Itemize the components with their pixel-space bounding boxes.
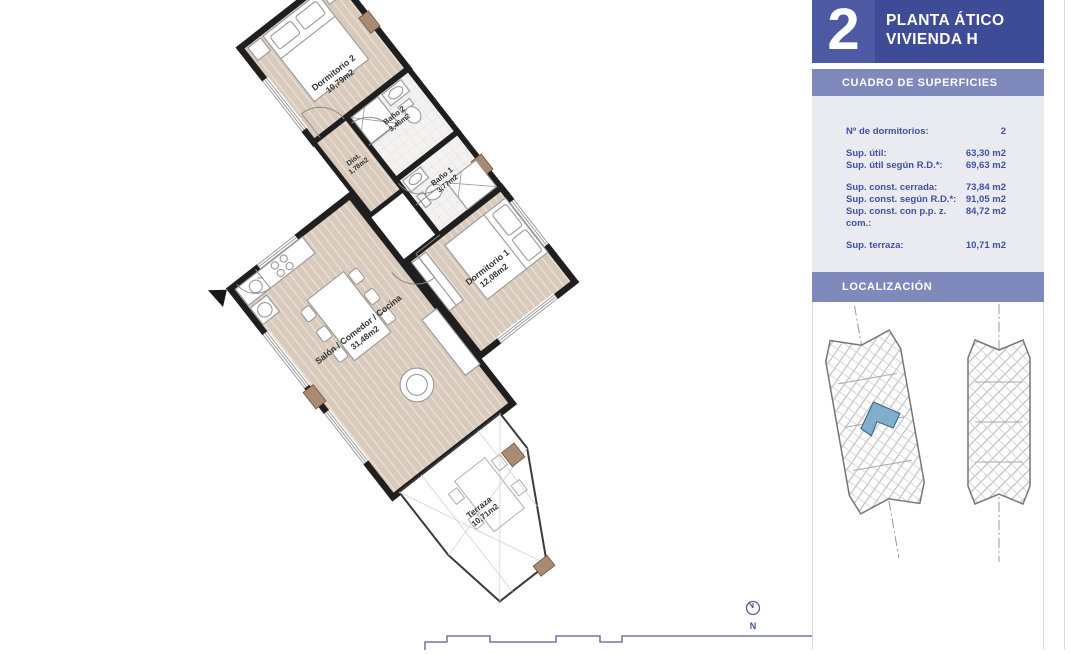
site-plan <box>813 302 1043 649</box>
table-row: Sup. útil:63,30 m2 <box>846 148 1006 160</box>
localizacion-box <box>812 302 1044 650</box>
entrance-arrow-icon <box>208 281 234 308</box>
north-label: N <box>750 621 757 631</box>
north-compass-icon: N <box>747 602 760 632</box>
table-row: Sup. const. cerrada:73,84 m2 <box>846 182 1006 194</box>
table-row: Nº de dormitorios:2 <box>846 126 1006 138</box>
section-profile-outline <box>425 636 812 650</box>
table-row: Sup. útil según R.D.*:69,63 m2 <box>846 160 1006 172</box>
sheet-frame-line <box>1064 0 1065 650</box>
surface-table: Nº de dormitorios:2 Sup. útil:63,30 m2 S… <box>812 96 1044 272</box>
floor-number-tile: 2 <box>812 0 875 63</box>
table-row: Sup. const. según R.D.*:91,05 m2 <box>846 194 1006 206</box>
section-header-superficies: CUADRO DE SUPERFICIES <box>812 69 1044 96</box>
panel-header: 2 PLANTA ÁTICO VIVIENDA H <box>812 0 1044 63</box>
site-building-left <box>817 302 936 565</box>
floor-plan-drawing: Dormitorio 2 10,79m2 Baño 2 3,46m2 Dist.… <box>0 0 812 650</box>
apartment-unit: Dormitorio 2 10,79m2 Baño 2 3,46m2 Dist.… <box>101 0 709 629</box>
site-building-right <box>968 304 1030 562</box>
table-row: Sup. const. con p.p. z. com.:84,72 m2 <box>846 206 1006 230</box>
section-header-localizacion: LOCALIZACIÓN <box>812 272 1044 302</box>
page-title: PLANTA ÁTICO VIVIENDA H <box>886 11 1004 49</box>
table-row: Sup. terraza:10,71 m2 <box>846 240 1006 252</box>
